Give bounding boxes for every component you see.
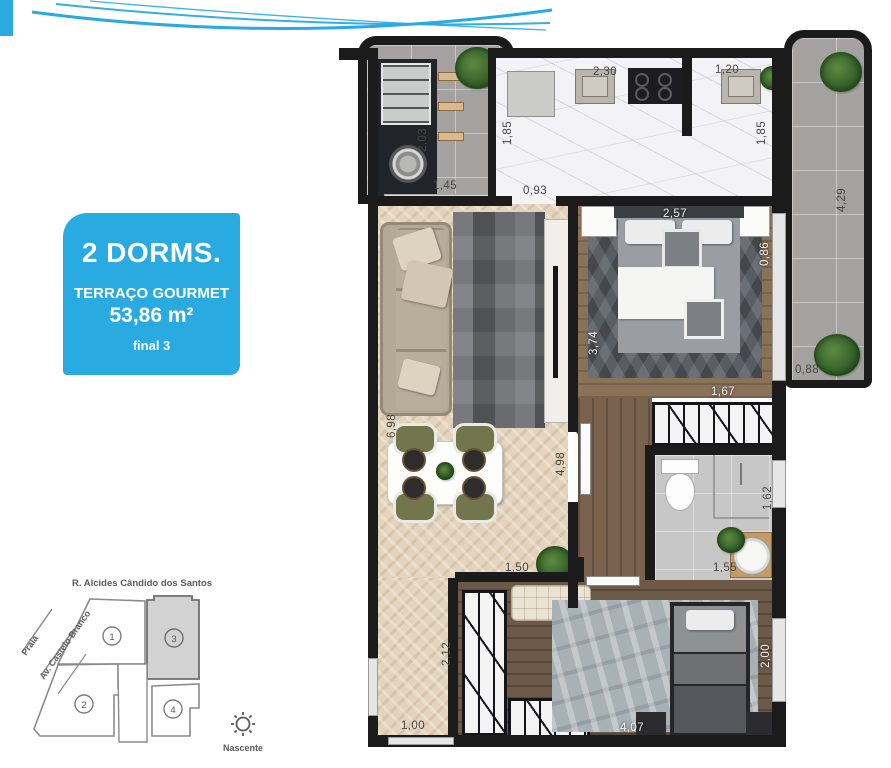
master-wardrobe [652,402,782,446]
side-terrace [784,30,872,388]
window-bottom [388,737,454,745]
dim-terrace-grill: 1,45 [433,180,457,192]
dining-chair [396,426,434,452]
dim-side-terrace-w: 0,88 [795,364,819,376]
dim-hall-w: 1,50 [505,562,529,574]
praia-label: Praia [19,633,40,658]
unit-4-number: 4 [170,705,175,716]
accent-pillow [684,299,724,339]
window-bedroom2 [772,618,786,702]
wall [339,48,369,60]
bedroom2-door [587,577,639,585]
bedroom2-hall [378,578,448,735]
dining-chair [456,426,494,452]
site-key-plan: R. Alcides Cândido dos Santos Praia Av. … [12,552,272,764]
dim-bath-depth: 1,62 [762,486,774,510]
dim-side-terrace-len: 4,29 [836,188,848,212]
window-bath [772,460,786,508]
core-column-outline [118,664,147,742]
dim-kitchen-pass: 0,93 [523,185,547,197]
toilet-bowl [665,473,695,511]
wall-bed1-top [578,196,772,206]
place-setting [464,478,484,498]
fridge [508,72,554,116]
apartment-floor-plan: 2,03 1,45 1,85 2,30 1,20 1,85 0,93 4,29 … [345,28,879,754]
dim-kitchen-right: 1,85 [756,121,768,145]
unit-1-number: 1 [109,632,114,643]
unit-feature-label: TERRAÇO GOURMET [63,285,240,302]
dim-kitchen-left: 1,85 [502,121,514,145]
plant [820,52,862,92]
wall-stub [572,557,584,582]
wall-bath-top [645,445,782,455]
dim-bed2-hall: 2,12 [441,642,453,666]
dim-bath-w: 1,55 [713,562,737,574]
plant [814,334,860,376]
unit-type-label: 2 DORMS. [63,237,240,269]
bedroom-2 [458,580,772,735]
place-setting [404,450,424,470]
accent-pillow [662,229,702,269]
place-setting [404,478,424,498]
kitchen-wall-stub [682,58,692,136]
floorplan-page: 2 DORMS. TERRAÇO GOURMET 53,86 m² final … [0,0,891,768]
dim-bed2-len: 4,07 [620,722,644,734]
shower-partition [713,455,715,517]
plant [717,527,745,553]
place-setting [464,450,484,470]
living-dining-room [378,204,568,608]
window-master [772,213,786,381]
master-bed [618,205,740,353]
cooktop [628,68,682,104]
tv-console [545,220,568,422]
shelf [439,103,463,110]
dim-bed2-window: 2,00 [760,644,772,668]
dim-bed1-width: 2,57 [663,208,687,220]
grill-rack-icon [383,65,429,123]
nascente-label: Nascente [223,743,263,753]
wall-left [368,48,378,738]
single-bed [670,602,750,737]
shower-head [740,463,742,485]
closet-rack [462,590,507,736]
table-plant [436,462,454,480]
wall-bath-left [645,448,655,580]
wall [378,196,512,206]
shelf [439,133,463,140]
wall-living-bed1 [568,196,578,432]
window-left [368,658,378,716]
master-bedroom [578,206,772,398]
street-label: R. Alcides Cândido dos Santos [72,578,212,589]
dim-living-len: 6,98 [386,414,398,438]
wall-living-corridor [568,502,578,608]
toilet [661,459,699,474]
dim-bed1-wardrobe: 1,67 [711,386,735,398]
dim-bed1-len: 3,74 [588,331,600,355]
sun-icon [231,712,255,736]
unit-3-number: 3 [171,634,176,645]
tv [553,266,558,378]
dim-kitchen-sink2: 1,20 [715,64,739,76]
shower-partition [713,517,769,519]
blue-corner-bar [0,0,13,36]
bedroom-door [581,424,590,494]
dim-bed2-window-b: 1,00 [401,720,425,732]
dim-hall-len: 4,98 [555,452,567,476]
nightstand [582,207,616,236]
unit-info-box: 2 DORMS. TERRAÇO GOURMET 53,86 m² final … [63,213,240,375]
unit-area-label: 53,86 m² [63,304,240,328]
dim-terrace-depth: 2,03 [417,128,429,152]
dim-bed1-window: 0,86 [759,242,771,266]
unit-2-number: 2 [81,700,86,711]
dim-kitchen-sink: 2,30 [593,66,617,78]
unit-final-label: final 3 [63,338,240,353]
living-rug [453,212,545,428]
